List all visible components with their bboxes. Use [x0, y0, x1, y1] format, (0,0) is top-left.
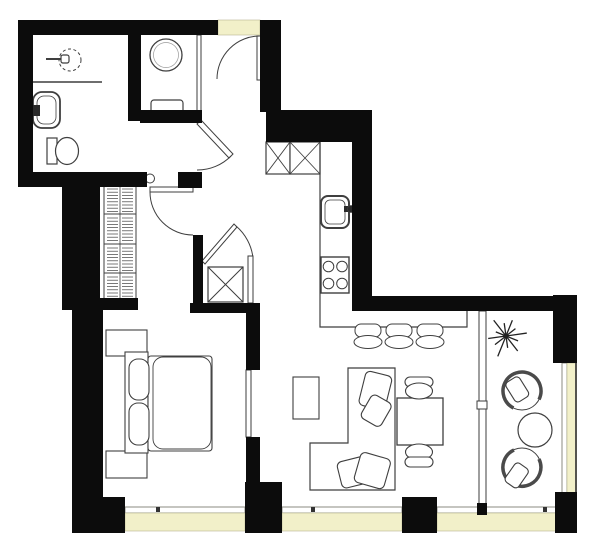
shower-nozzle — [61, 55, 69, 63]
wall — [178, 172, 202, 188]
wall — [92, 298, 138, 310]
entrance-opening — [218, 20, 260, 35]
sink-tap — [32, 105, 40, 116]
window-frame-living — [282, 507, 402, 513]
wall — [246, 437, 260, 487]
pillow — [129, 403, 149, 445]
window-glass-bedroom — [125, 513, 245, 531]
window-glass-balcony-bottom — [437, 513, 557, 531]
window-frame-balcony-bottom — [437, 507, 557, 513]
bar-stool-base — [385, 336, 413, 349]
dining-chair-back — [405, 457, 433, 467]
bar-stool-base — [354, 336, 382, 349]
sliding-door-bedroom — [246, 370, 251, 437]
wall — [402, 497, 437, 533]
wall — [555, 492, 577, 533]
window-frame-balcony-right — [562, 363, 567, 493]
floor-plan-svg — [0, 0, 600, 553]
window-mullion — [543, 507, 547, 512]
partition-closet — [248, 256, 253, 303]
wall — [72, 497, 125, 533]
wall — [18, 20, 218, 35]
toilet-bowl — [56, 138, 79, 165]
wall — [477, 503, 487, 515]
window-glass-living — [282, 513, 402, 531]
wall — [246, 303, 260, 370]
wall — [352, 296, 557, 311]
window-mullion — [311, 507, 315, 512]
wall — [352, 110, 372, 298]
wall — [193, 235, 203, 310]
nightstand — [106, 451, 147, 478]
glass-partition-joint — [477, 401, 487, 409]
wall — [260, 20, 281, 112]
window-glass-balcony-right — [567, 363, 576, 493]
bar-stool-base — [416, 336, 444, 349]
floor-plan-page — [0, 0, 600, 553]
wall — [72, 310, 103, 502]
partition-laundry — [197, 35, 201, 111]
window-mullion — [156, 507, 160, 512]
window-frame-bedroom — [125, 507, 245, 513]
wall — [128, 22, 141, 121]
wardrobe-section — [104, 214, 136, 244]
wardrobe-section — [104, 244, 136, 273]
dining-chair-seat — [406, 383, 433, 399]
wall — [18, 20, 33, 187]
wall — [245, 482, 282, 533]
wall — [62, 172, 100, 310]
wall — [553, 295, 577, 363]
bed — [148, 356, 212, 451]
wardrobe-section — [104, 185, 136, 214]
wall — [140, 110, 202, 123]
pillow — [129, 359, 149, 400]
